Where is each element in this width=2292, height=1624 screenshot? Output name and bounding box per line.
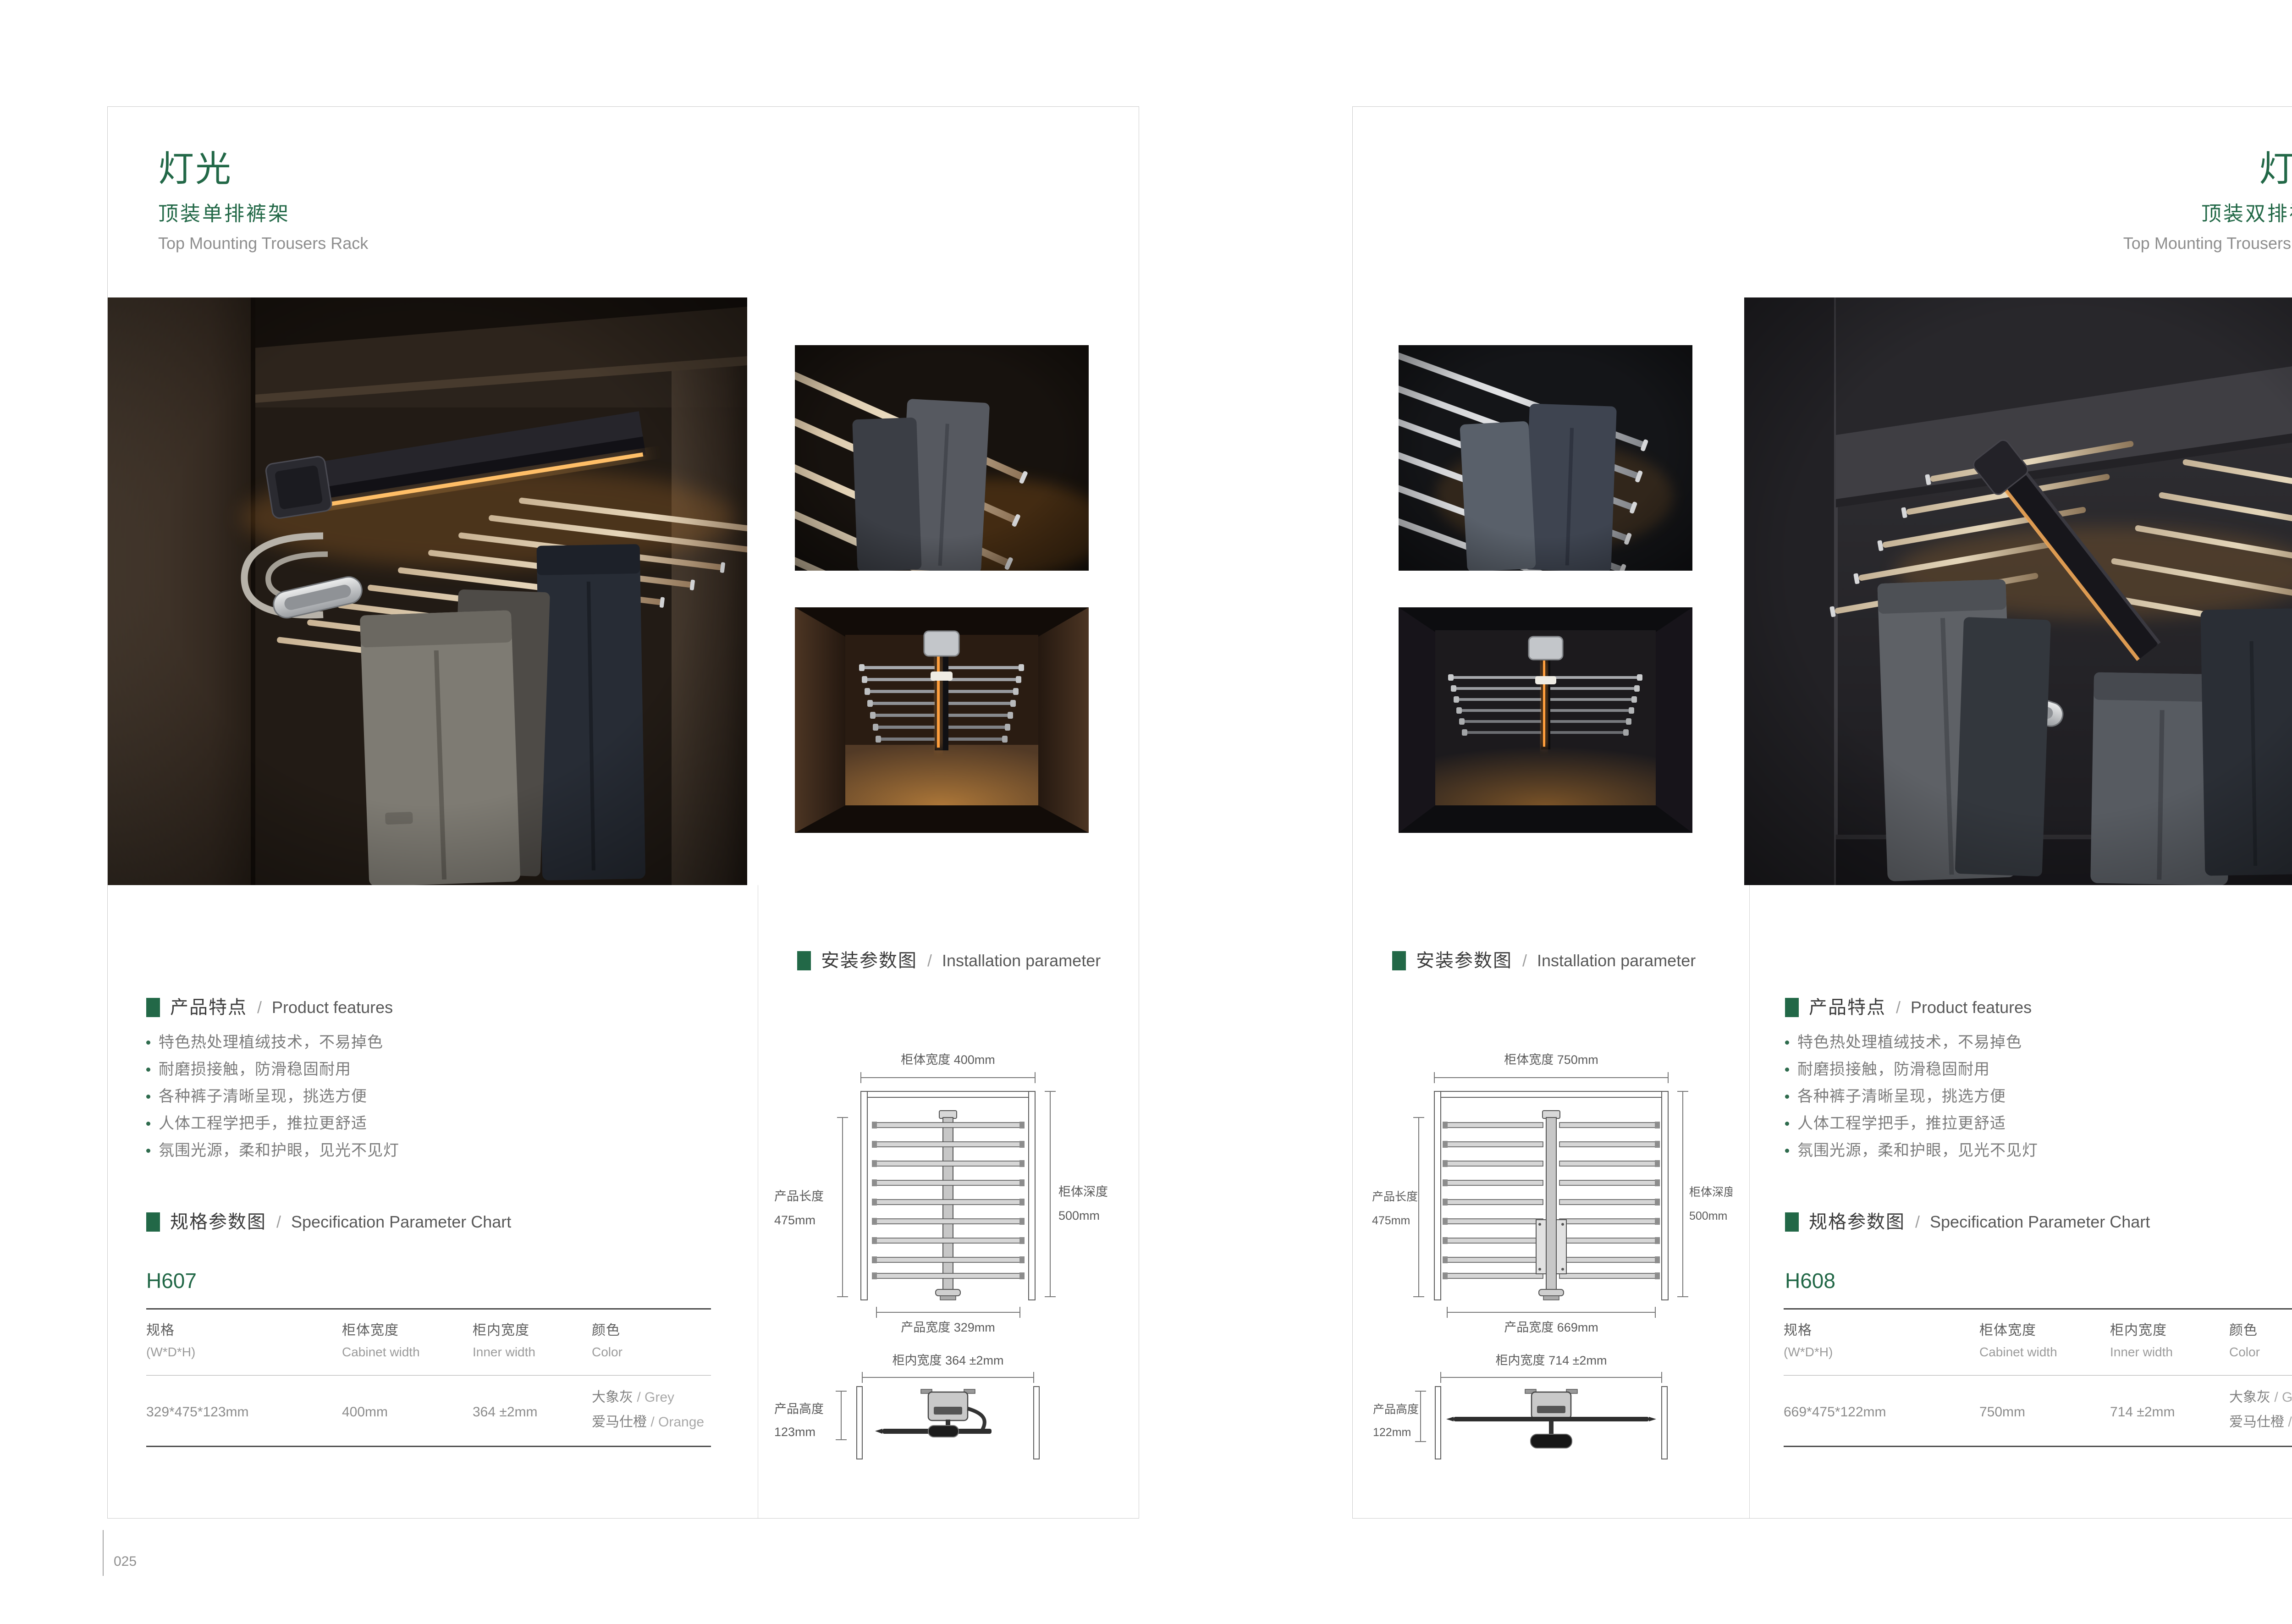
- feature-item: 人体工程学把手，推拉更舒适: [146, 1116, 367, 1131]
- product-subtitle-en: Top Mounting Trousers Rack: [2123, 235, 2292, 252]
- column-divider: [1749, 885, 1750, 1518]
- table-rule: [1784, 1446, 2292, 1447]
- bullet-icon: [146, 1149, 150, 1153]
- feature-item: 人体工程学把手，推拉更舒适: [1785, 1116, 2006, 1131]
- features-heading: 产品特点 / Product features: [1785, 998, 2032, 1017]
- svg-text:产品长度: 产品长度: [1372, 1190, 1418, 1203]
- feature-item: 氛围光源，柔和护眼，见光不见灯: [146, 1143, 399, 1158]
- col-header-en: Inner width: [2110, 1346, 2173, 1359]
- feature-item: 氛围光源，柔和护眼，见光不见灯: [1785, 1143, 2038, 1158]
- product-subtitle-cn: 顶装双排裤架: [2201, 204, 2292, 224]
- svg-text:475mm: 475mm: [1372, 1214, 1410, 1227]
- col-header: 柜体宽度: [342, 1324, 399, 1338]
- features-heading: 产品特点 / Product features: [146, 998, 393, 1017]
- feature-item: 特色热处理植绒技术，不易掉色: [1785, 1035, 2022, 1050]
- svg-text:500mm: 500mm: [1058, 1209, 1100, 1222]
- product-subtitle-en: Top Mounting Trousers Rack: [158, 235, 368, 252]
- svg-text:475mm: 475mm: [774, 1213, 815, 1227]
- spec-table: 规格 (W*D*H) 柜体宽度 Cabinet width 柜内宽度 Inner…: [1784, 1308, 2292, 1447]
- svg-text:柜内宽度 714 ±2mm: 柜内宽度 714 ±2mm: [1496, 1354, 1607, 1367]
- feature-item: 特色热处理植绒技术，不易掉色: [146, 1035, 383, 1050]
- photo-detail-double-bars: [1399, 345, 1692, 571]
- svg-text:产品宽度 329mm: 产品宽度 329mm: [901, 1321, 995, 1334]
- feature-item: 各种裤子清晰呈现，挑选方便: [1785, 1089, 2006, 1104]
- spec-heading: 规格参数图 / Specification Parameter Chart: [146, 1212, 511, 1232]
- col-header-en: (W*D*H): [1784, 1346, 1833, 1359]
- svg-text:柜内宽度 364 ±2mm: 柜内宽度 364 ±2mm: [893, 1354, 1004, 1367]
- spec-color-value: 爱马仕橙 / Orange: [2229, 1415, 2292, 1429]
- spec-color-value: 大象灰 / Grey: [2229, 1391, 2292, 1404]
- feature-item: 各种裤子清晰呈现，挑选方便: [146, 1089, 367, 1104]
- photo-rack-top-view-cabinet: [795, 607, 1089, 833]
- col-header-en: Inner width: [473, 1346, 535, 1359]
- bullet-icon: [1785, 1095, 1789, 1099]
- photo-wardrobe-double-rack: [1744, 297, 2292, 885]
- svg-text:产品高度: 产品高度: [774, 1402, 824, 1416]
- model-number: H607: [146, 1270, 197, 1291]
- spec-size-value: 329*475*123mm: [146, 1405, 249, 1419]
- svg-text:产品宽度 669mm: 产品宽度 669mm: [1504, 1321, 1598, 1334]
- table-rule: [146, 1308, 711, 1310]
- table-rule: [146, 1375, 711, 1376]
- bullet-icon: [146, 1040, 150, 1045]
- col-header-en: Cabinet width: [342, 1346, 420, 1359]
- model-number: H608: [1785, 1270, 1835, 1291]
- spec-cabinet-width-value: 750mm: [1979, 1405, 2025, 1419]
- svg-text:122mm: 122mm: [1373, 1426, 1411, 1439]
- page-title: 灯光: [158, 151, 232, 187]
- page-number-left: 025: [114, 1555, 137, 1569]
- col-header: 规格: [146, 1324, 175, 1338]
- spec-table: 规格 (W*D*H) 柜体宽度 Cabinet width 柜内宽度 Inner…: [146, 1308, 711, 1447]
- installation-heading: 安装参数图 / Installation parameter: [797, 951, 1101, 970]
- table-rule: [1784, 1308, 2292, 1310]
- photo-detail-bars-trousers: [795, 345, 1089, 571]
- svg-text:柜体深度: 柜体深度: [1058, 1185, 1108, 1199]
- col-header-en: Color: [592, 1346, 623, 1359]
- bullet-icon: [1785, 1122, 1789, 1126]
- feature-item: 耐磨损接触，防滑稳固耐用: [1785, 1062, 1990, 1077]
- installation-diagram-front: 柜内宽度 714 ±2mm 产品高度 122mm: [1370, 1350, 1732, 1469]
- catalog-page-right: 灯光 顶装双排裤架 Top Mounting Trousers Rack: [1352, 106, 2292, 1519]
- footer-divider: [103, 1530, 104, 1576]
- svg-text:柜体宽度 400mm: 柜体宽度 400mm: [901, 1053, 995, 1067]
- spec-heading: 规格参数图 / Specification Parameter Chart: [1785, 1212, 2150, 1232]
- svg-text:500mm: 500mm: [1689, 1210, 1727, 1222]
- photo-wardrobe-single-rack: [108, 297, 747, 885]
- bullet-icon: [146, 1068, 150, 1072]
- table-rule: [1784, 1375, 2292, 1376]
- spec-inner-width-value: 364 ±2mm: [473, 1405, 538, 1419]
- svg-text:123mm: 123mm: [774, 1425, 815, 1439]
- catalog-page-left: 灯光 顶装单排裤架 Top Mounting Trousers Rack: [107, 106, 1139, 1519]
- bullet-icon: [1785, 1040, 1789, 1045]
- svg-text:产品高度: 产品高度: [1373, 1403, 1419, 1416]
- section-marker: [1785, 1212, 1799, 1232]
- bullet-icon: [146, 1122, 150, 1126]
- col-header: 柜内宽度: [473, 1324, 529, 1338]
- section-marker: [146, 1212, 160, 1232]
- installation-diagram-front: 柜内宽度 364 ±2mm 产品高度 123mm: [767, 1350, 1129, 1469]
- col-header-en: Color: [2229, 1346, 2260, 1359]
- spec-color-value: 爱马仕橙 / Orange: [592, 1415, 704, 1429]
- product-subtitle-cn: 顶装单排裤架: [158, 204, 290, 224]
- col-header-en: Cabinet width: [1979, 1346, 2057, 1359]
- col-header: 柜内宽度: [2110, 1324, 2167, 1338]
- col-header-en: (W*D*H): [146, 1346, 195, 1359]
- feature-item: 耐磨损接触，防滑稳固耐用: [146, 1062, 351, 1077]
- col-header: 颜色: [2229, 1324, 2258, 1338]
- installation-diagram-plan: 柜体宽度 750mm: [1370, 1042, 1732, 1335]
- svg-text:产品长度: 产品长度: [774, 1189, 824, 1203]
- bullet-icon: [1785, 1068, 1789, 1072]
- page-title: 灯光: [2259, 151, 2292, 187]
- col-header: 柜体宽度: [1979, 1324, 2036, 1338]
- bullet-icon: [146, 1095, 150, 1099]
- photo-double-rack-top-view: [1399, 607, 1692, 833]
- column-divider: [758, 885, 758, 1518]
- col-header: 规格: [1784, 1324, 1812, 1338]
- bullet-icon: [1785, 1149, 1789, 1153]
- spec-color-value: 大象灰 / Grey: [592, 1391, 674, 1404]
- installation-diagram-plan: 柜体宽度 400mm: [767, 1042, 1129, 1335]
- spec-inner-width-value: 714 ±2mm: [2110, 1405, 2175, 1419]
- svg-text:柜体宽度 750mm: 柜体宽度 750mm: [1504, 1053, 1598, 1067]
- svg-text:柜体深度: 柜体深度: [1689, 1186, 1732, 1199]
- col-header: 颜色: [592, 1324, 620, 1338]
- spec-cabinet-width-value: 400mm: [342, 1405, 388, 1419]
- section-marker: [797, 951, 811, 970]
- table-rule: [146, 1446, 711, 1447]
- section-marker: [1392, 951, 1406, 970]
- section-marker: [1785, 998, 1799, 1017]
- spec-size-value: 669*475*122mm: [1784, 1405, 1886, 1419]
- section-marker: [146, 998, 160, 1017]
- installation-heading: 安装参数图 / Installation parameter: [1392, 951, 1696, 970]
